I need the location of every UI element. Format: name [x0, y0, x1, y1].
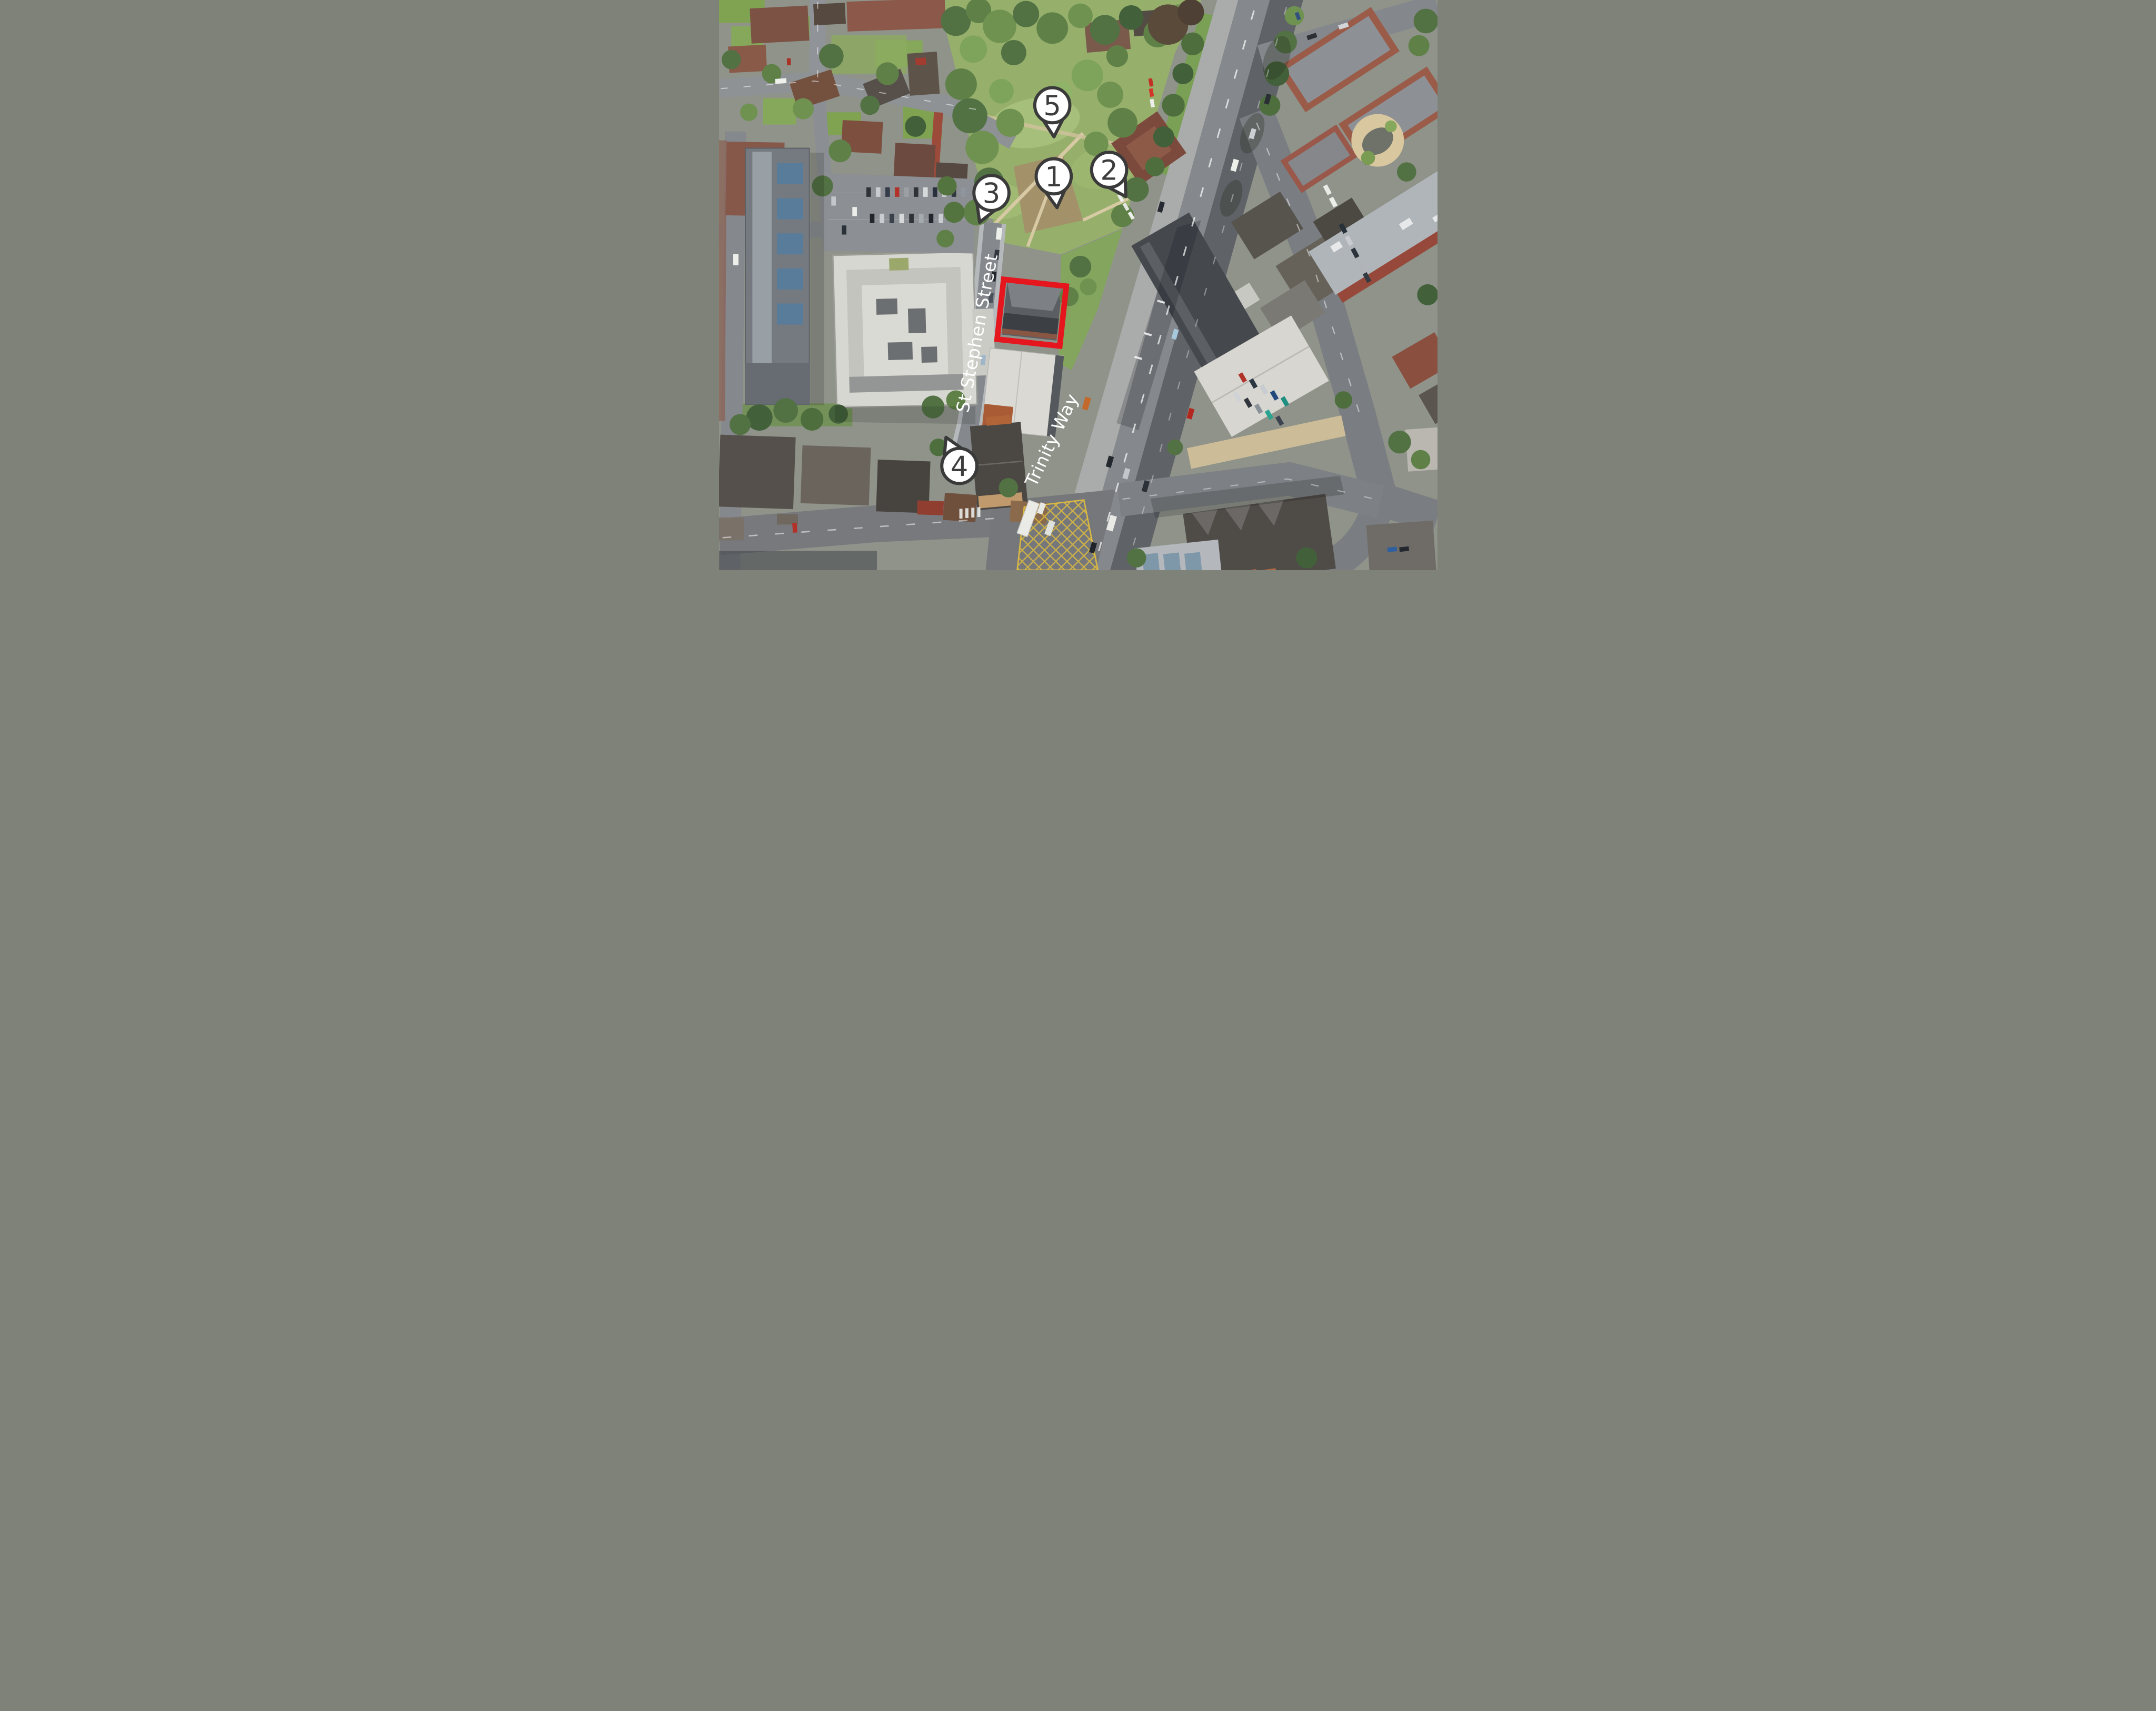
site-building	[1001, 282, 1062, 341]
marker-number: 3	[982, 178, 1000, 210]
marker-number: 4	[950, 451, 968, 483]
aerial-map-figure: St Stephen StreetTrinity Way12345	[719, 0, 1438, 570]
marker-number: 5	[1043, 90, 1061, 122]
marker-number: 1	[1045, 161, 1063, 193]
aerial-photo: St Stephen StreetTrinity Way12345	[719, 0, 1438, 570]
marker-number: 2	[1100, 155, 1117, 187]
